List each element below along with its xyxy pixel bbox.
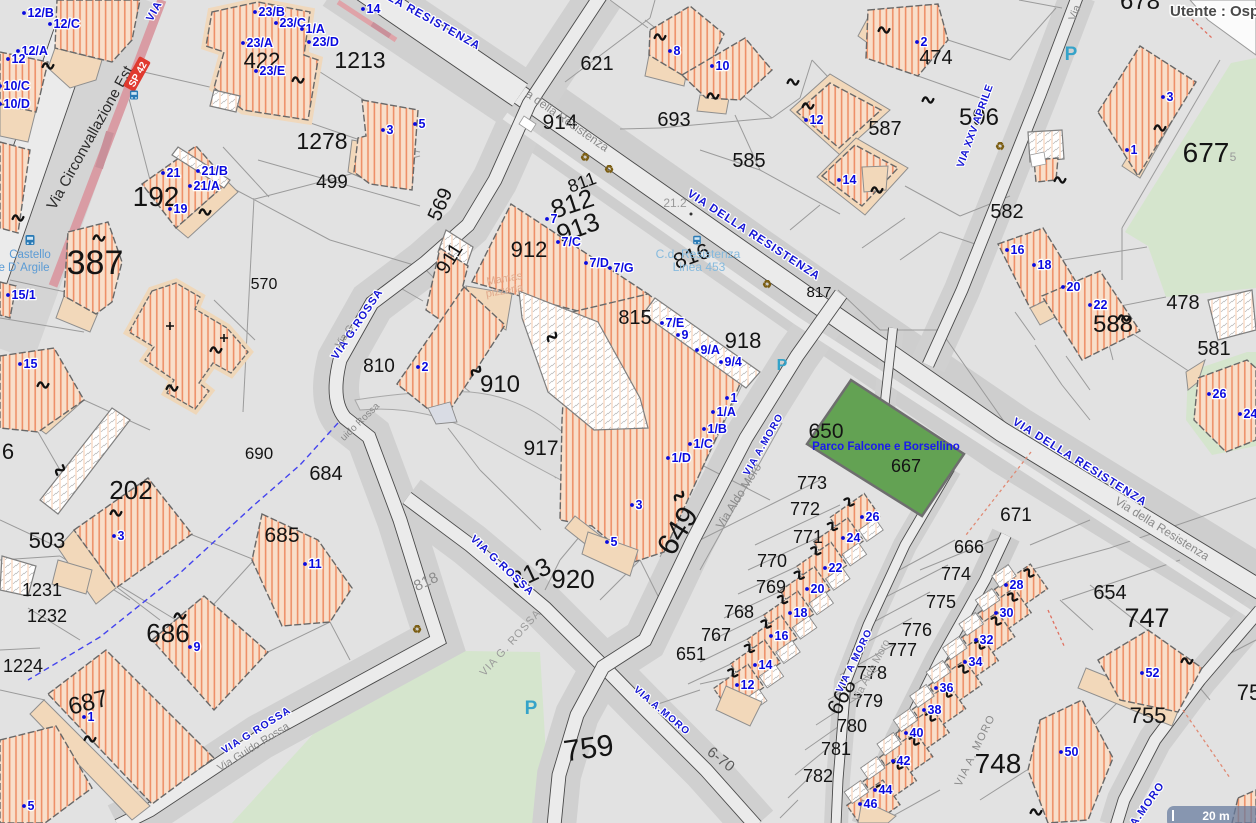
svg-text:8: 8: [674, 44, 681, 58]
svg-text:21: 21: [167, 166, 181, 180]
svg-text:P: P: [525, 698, 538, 719]
svg-text:12/A: 12/A: [22, 44, 48, 58]
svg-text:5: 5: [611, 535, 618, 549]
svg-text:651: 651: [676, 644, 706, 664]
svg-text:22: 22: [1094, 298, 1108, 312]
svg-text:1278: 1278: [296, 128, 347, 154]
svg-text:12/B: 12/B: [28, 6, 54, 20]
svg-text:585: 585: [732, 150, 765, 172]
svg-text:18: 18: [1038, 258, 1052, 272]
svg-text:587: 587: [868, 118, 901, 140]
svg-text:12/C: 12/C: [54, 17, 80, 31]
svg-text:1232: 1232: [27, 606, 67, 626]
svg-text:36: 36: [940, 681, 954, 695]
svg-text:478: 478: [1166, 292, 1199, 314]
svg-text:667: 667: [891, 456, 921, 476]
svg-text:1213: 1213: [334, 47, 385, 73]
svg-text:684: 684: [309, 463, 342, 485]
svg-text:24: 24: [847, 531, 861, 545]
svg-text:677: 677: [1183, 137, 1230, 168]
svg-text:1: 1: [88, 710, 95, 724]
svg-text:10/C: 10/C: [4, 79, 30, 93]
svg-text:771: 771: [793, 527, 823, 547]
svg-text:1/A: 1/A: [306, 22, 325, 36]
svg-text:46: 46: [864, 797, 878, 811]
svg-text:16: 16: [775, 629, 789, 643]
svg-text:917: 917: [523, 437, 558, 460]
svg-text:7: 7: [551, 212, 558, 226]
svg-text:23/D: 23/D: [313, 35, 339, 49]
svg-text:690: 690: [245, 444, 273, 463]
svg-text:773: 773: [797, 473, 827, 493]
svg-text:7/D: 7/D: [590, 256, 609, 270]
svg-text:776: 776: [902, 620, 932, 640]
svg-text:780: 780: [837, 716, 867, 736]
svg-text:32: 32: [980, 633, 994, 647]
svg-text:Castello: Castello: [9, 249, 51, 261]
svg-text:910: 910: [480, 371, 520, 398]
svg-text:5: 5: [1230, 150, 1237, 164]
svg-text:9/A: 9/A: [701, 343, 720, 357]
svg-text:♻: ♻: [580, 152, 590, 164]
svg-text:21/A: 21/A: [194, 179, 220, 193]
svg-text:782: 782: [803, 766, 833, 786]
svg-text:24: 24: [1244, 407, 1256, 421]
svg-text:♻: ♻: [762, 279, 772, 291]
svg-text:582: 582: [990, 201, 1023, 223]
svg-text:30: 30: [1000, 606, 1014, 620]
svg-text:202: 202: [109, 475, 152, 505]
svg-text:693: 693: [657, 109, 690, 131]
svg-text:774: 774: [941, 564, 971, 584]
svg-text:16: 16: [1011, 243, 1025, 257]
svg-text:40: 40: [910, 726, 924, 740]
svg-text:686: 686: [146, 618, 189, 648]
svg-text:11: 11: [309, 557, 322, 571]
svg-text:810: 810: [363, 356, 395, 377]
svg-text:781: 781: [821, 739, 851, 759]
svg-text:387: 387: [67, 244, 124, 282]
svg-text:650: 650: [808, 420, 843, 443]
svg-text:12: 12: [810, 113, 824, 127]
svg-text:920: 920: [551, 564, 594, 594]
svg-text:52: 52: [1146, 666, 1160, 680]
svg-text:503: 503: [29, 528, 66, 553]
svg-text:759: 759: [562, 729, 616, 769]
svg-text:14: 14: [367, 2, 381, 16]
svg-text:10: 10: [716, 59, 730, 73]
svg-text:23/A: 23/A: [247, 36, 273, 50]
svg-text:654: 654: [1093, 582, 1126, 604]
svg-text:775: 775: [926, 592, 956, 612]
svg-text:581: 581: [1197, 338, 1230, 360]
svg-text:570: 570: [251, 276, 278, 293]
svg-text:747: 747: [1124, 603, 1169, 633]
svg-text:671: 671: [1000, 505, 1032, 526]
svg-text:1/A: 1/A: [717, 405, 736, 419]
svg-text:21.2: 21.2: [663, 196, 687, 210]
svg-text:1/D: 1/D: [672, 451, 691, 465]
svg-text:772: 772: [790, 499, 820, 519]
svg-text:755: 755: [1130, 703, 1167, 728]
svg-text:1224: 1224: [3, 656, 43, 676]
svg-text:9: 9: [682, 328, 689, 342]
svg-text:26: 26: [1213, 387, 1227, 401]
svg-text:12: 12: [12, 52, 26, 66]
svg-text:19: 19: [174, 202, 188, 216]
svg-text:e D`Argile: e D`Argile: [0, 262, 50, 274]
svg-text:38: 38: [928, 703, 942, 717]
svg-text:1231: 1231: [22, 580, 62, 600]
svg-text:44: 44: [879, 783, 893, 797]
svg-text:6: 6: [2, 439, 14, 464]
svg-text:1/B: 1/B: [708, 422, 727, 436]
svg-text:12: 12: [741, 678, 755, 692]
svg-text:7/C: 7/C: [562, 235, 581, 249]
svg-text:14: 14: [759, 658, 773, 672]
svg-text:9: 9: [194, 640, 201, 654]
svg-text:10/D: 10/D: [4, 97, 30, 111]
svg-text:474: 474: [919, 47, 952, 69]
svg-text:♻: ♻: [412, 624, 422, 636]
svg-text:50: 50: [1065, 745, 1079, 759]
svg-text:26: 26: [866, 510, 880, 524]
svg-text:678: 678: [1120, 0, 1160, 15]
svg-text:42: 42: [897, 754, 911, 768]
svg-text:15/1: 15/1: [12, 288, 36, 302]
svg-text:P: P: [1065, 44, 1078, 65]
svg-text:C.d. Resistenza: C.d. Resistenza: [656, 247, 741, 261]
svg-text:3: 3: [1167, 90, 1174, 104]
svg-text:22: 22: [829, 561, 843, 575]
svg-text:499: 499: [316, 172, 348, 193]
svg-text:3: 3: [118, 529, 125, 543]
svg-text:1: 1: [1131, 143, 1138, 157]
svg-text:769: 769: [756, 577, 786, 597]
svg-text:770: 770: [757, 551, 787, 571]
svg-text:20: 20: [1067, 280, 1081, 294]
svg-text:Linea 453: Linea 453: [673, 260, 726, 274]
svg-text:588: 588: [1093, 311, 1133, 338]
svg-text:28: 28: [1010, 578, 1024, 592]
svg-text:♻: ♻: [995, 141, 1005, 153]
svg-text:748: 748: [975, 748, 1022, 779]
svg-text:20 m: 20 m: [1202, 809, 1229, 823]
svg-text:5: 5: [28, 799, 35, 813]
svg-text:768: 768: [724, 602, 754, 622]
svg-text:14: 14: [843, 173, 857, 187]
svg-text:75: 75: [1237, 680, 1256, 705]
svg-text:1: 1: [731, 391, 738, 405]
svg-text:P: P: [777, 357, 788, 374]
svg-text:2: 2: [921, 35, 928, 49]
svg-text:7/G: 7/G: [614, 261, 634, 275]
svg-text:34: 34: [969, 655, 983, 669]
svg-text:192: 192: [133, 181, 180, 212]
svg-text:912: 912: [511, 237, 548, 262]
svg-text:Utente : Ospi: Utente : Ospi: [1170, 3, 1256, 20]
svg-text:23/E: 23/E: [260, 64, 286, 78]
svg-text:21/B: 21/B: [202, 164, 228, 178]
svg-text:666: 666: [954, 537, 984, 557]
svg-text:767: 767: [701, 625, 731, 645]
svg-text:685: 685: [264, 524, 299, 547]
svg-text:15: 15: [24, 357, 38, 371]
svg-text:18: 18: [794, 606, 808, 620]
svg-text:3: 3: [636, 498, 643, 512]
svg-text:5: 5: [419, 117, 426, 131]
svg-text:3: 3: [387, 123, 394, 137]
svg-text:♻: ♻: [604, 164, 614, 176]
svg-text:918: 918: [725, 328, 762, 353]
svg-text:20: 20: [811, 582, 825, 596]
svg-text:9/4: 9/4: [725, 355, 742, 369]
svg-text:2: 2: [422, 360, 429, 374]
svg-text:817: 817: [806, 284, 831, 301]
svg-text:1/C: 1/C: [694, 437, 713, 451]
svg-text:815: 815: [618, 307, 651, 329]
svg-text:621: 621: [580, 53, 613, 75]
